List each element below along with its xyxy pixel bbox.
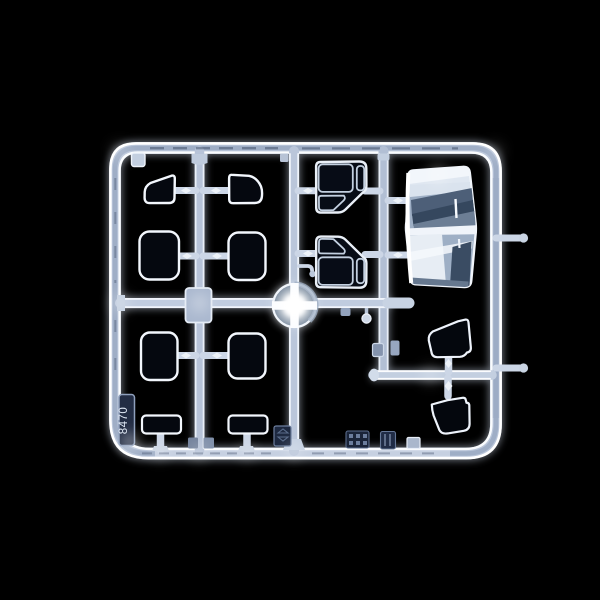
svg-text:8470: 8470 bbox=[118, 407, 130, 435]
